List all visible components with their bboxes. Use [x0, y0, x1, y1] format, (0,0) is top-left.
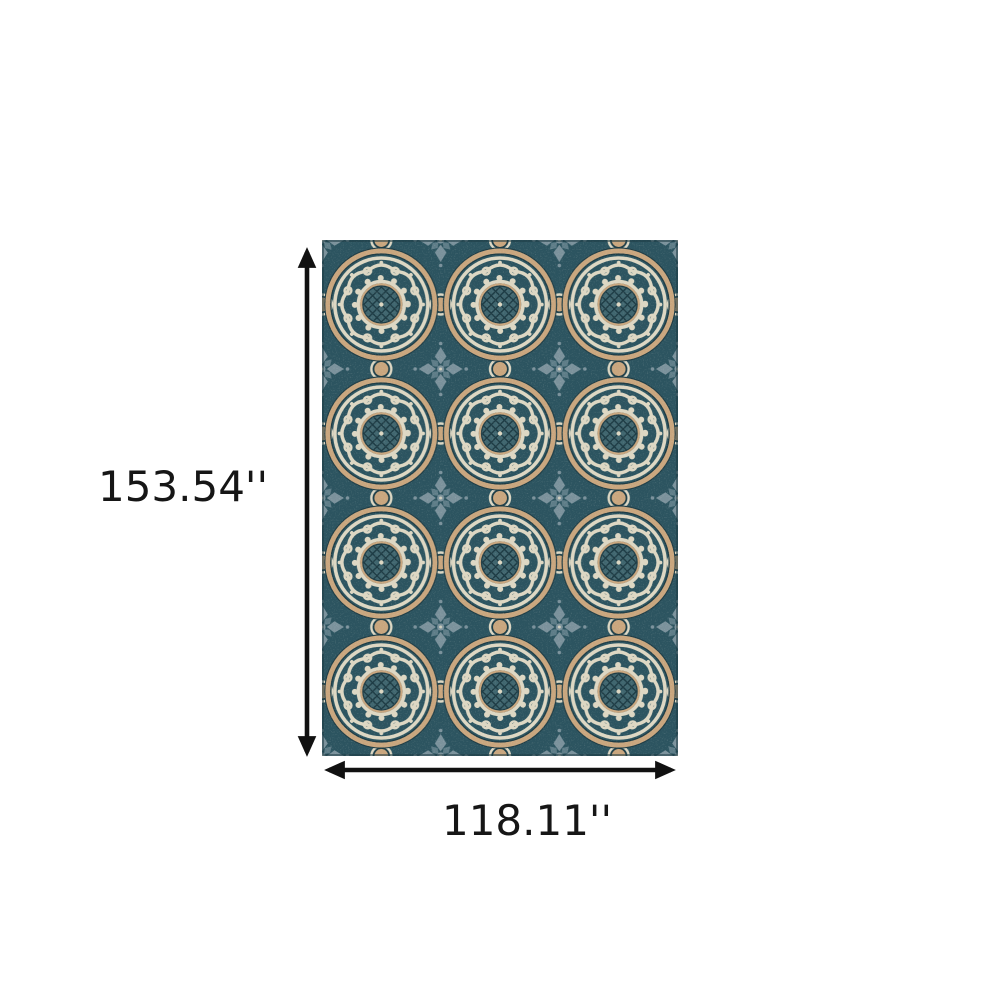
- product-dimension-diagram: 153.54'' 118.11'': [0, 0, 1000, 1000]
- rug-image: [322, 240, 678, 756]
- height-dimension-label: 153.54'': [63, 464, 303, 510]
- width-dimension-label: 118.11'': [407, 798, 647, 844]
